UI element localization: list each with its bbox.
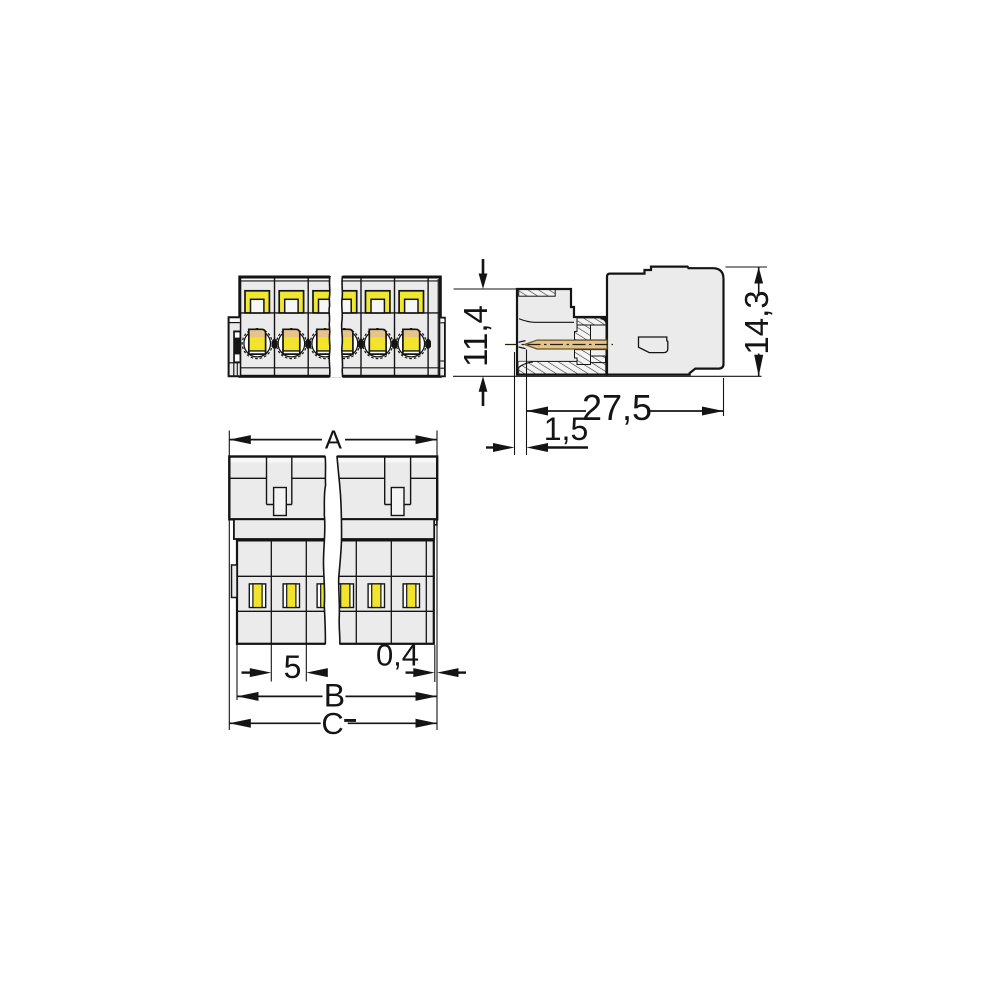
svg-text:14,3: 14,3 (738, 290, 775, 354)
svg-text:5: 5 (284, 649, 302, 685)
svg-text:11,4: 11,4 (457, 305, 494, 367)
svg-text:1,5: 1,5 (544, 411, 588, 447)
svg-text:27,5: 27,5 (582, 387, 652, 428)
svg-text:A: A (325, 427, 342, 455)
svg-text:C: C (321, 706, 343, 741)
svg-text:0,4: 0,4 (376, 638, 419, 673)
